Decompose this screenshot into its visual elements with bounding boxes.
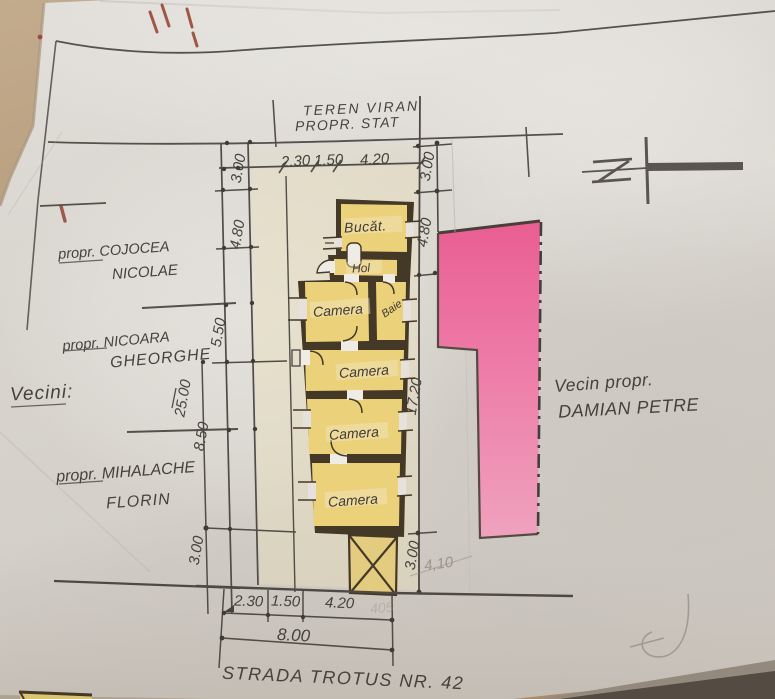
svg-text:8.00: 8.00: [277, 625, 312, 646]
svg-text:4.20: 4.20: [360, 150, 391, 169]
svg-text:2.30: 2.30: [233, 592, 264, 610]
svg-text:Vecini:: Vecini:: [10, 381, 74, 405]
svg-text:Bucăt.: Bucăt.: [344, 217, 387, 235]
svg-text:Hol: Hol: [352, 261, 371, 276]
svg-text:1.50: 1.50: [271, 593, 301, 611]
svg-text:1.50: 1.50: [314, 151, 345, 170]
svg-text:2.30: 2.30: [280, 152, 312, 171]
svg-text:4.20: 4.20: [325, 594, 355, 612]
svg-text:405: 405: [369, 599, 394, 617]
